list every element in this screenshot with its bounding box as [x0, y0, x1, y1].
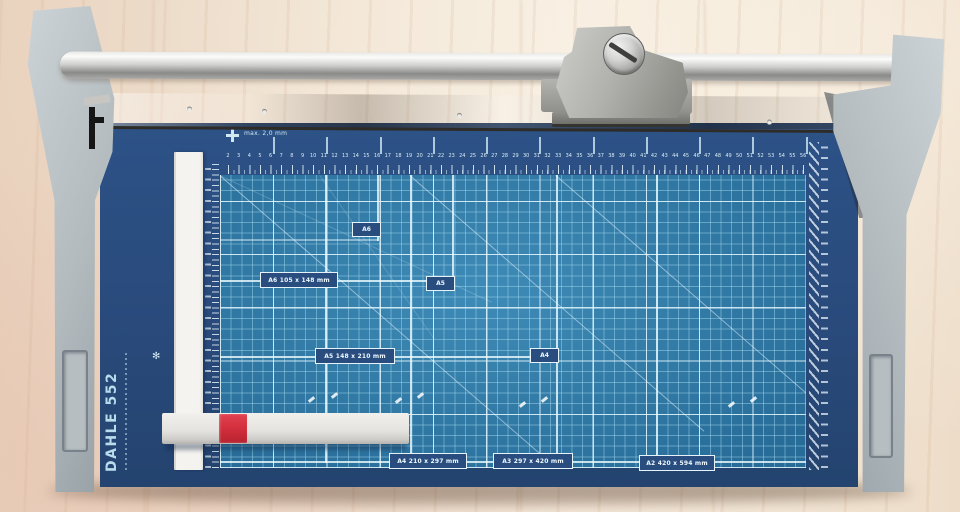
paper-outline-line: [452, 175, 454, 283]
long-reference-tick: [326, 137, 328, 154]
rivet: [767, 119, 772, 124]
rivet: [262, 109, 267, 114]
diagonal-guide-line: [555, 175, 806, 412]
left-handle-slot: [62, 350, 88, 452]
corner-tag-a6: A6: [352, 222, 381, 237]
paper-outline-line: [410, 175, 412, 463]
long-reference-tick: [699, 137, 701, 154]
chrome-guide-bar: [60, 52, 912, 82]
mat-top-ruler: 2345678910111213141516171819202122232425…: [220, 153, 806, 164]
cutting-capacity-label: max. 2,0 mm: [244, 130, 287, 137]
long-reference-tick: [752, 137, 754, 154]
photo-paper-trimmer: max. 2,0 mm 2345678910111213141516171819…: [0, 0, 960, 512]
paper-outline-line: [556, 175, 558, 463]
brand-smallprint: [125, 352, 127, 470]
long-reference-tick: [539, 137, 541, 154]
size-label-a3: A3 297 x 420 mm: [493, 453, 573, 469]
right-scale-numbers: [821, 146, 828, 468]
left-clamp-lever: [89, 107, 95, 149]
long-reference-tick: [486, 137, 488, 154]
long-reference-tick: [593, 137, 595, 154]
rail-sheen: [92, 93, 882, 130]
brand-flower-icon: ✻: [152, 351, 160, 362]
ruler-tick-row-mm: [228, 170, 806, 174]
size-label-a4: A4 210 x 297 mm: [389, 453, 467, 469]
corner-tag-a4: A4: [530, 348, 559, 363]
backstop-bar: [162, 413, 409, 444]
clamp-rail: [92, 93, 882, 133]
red-slider-button: [219, 414, 247, 443]
size-label-a5: A5 148 x 210 mm: [315, 348, 395, 364]
crosshair-icon: [226, 129, 239, 142]
long-reference-tick: [646, 137, 648, 154]
long-reference-tick: [433, 137, 435, 154]
right-handle-slot: [869, 354, 893, 458]
right-angle-scale: [809, 142, 819, 470]
backstop-shadow: [166, 443, 406, 450]
paper-outline-line: [656, 175, 658, 463]
corner-tag-a5: A5: [426, 276, 455, 291]
left-clamp-lever-arm: [89, 117, 104, 123]
rivet: [187, 106, 192, 111]
size-label-a2: A2 420 x 594 mm: [639, 455, 715, 471]
size-label-a6: A6 105 x 148 mm: [260, 272, 338, 288]
rivet: [457, 113, 462, 118]
paper-outline-line: [220, 239, 378, 241]
long-reference-tick: [380, 137, 382, 154]
long-reference-tick: [806, 137, 808, 154]
brand-label: DAHLE 552: [104, 332, 121, 472]
long-reference-tick: [273, 137, 275, 154]
